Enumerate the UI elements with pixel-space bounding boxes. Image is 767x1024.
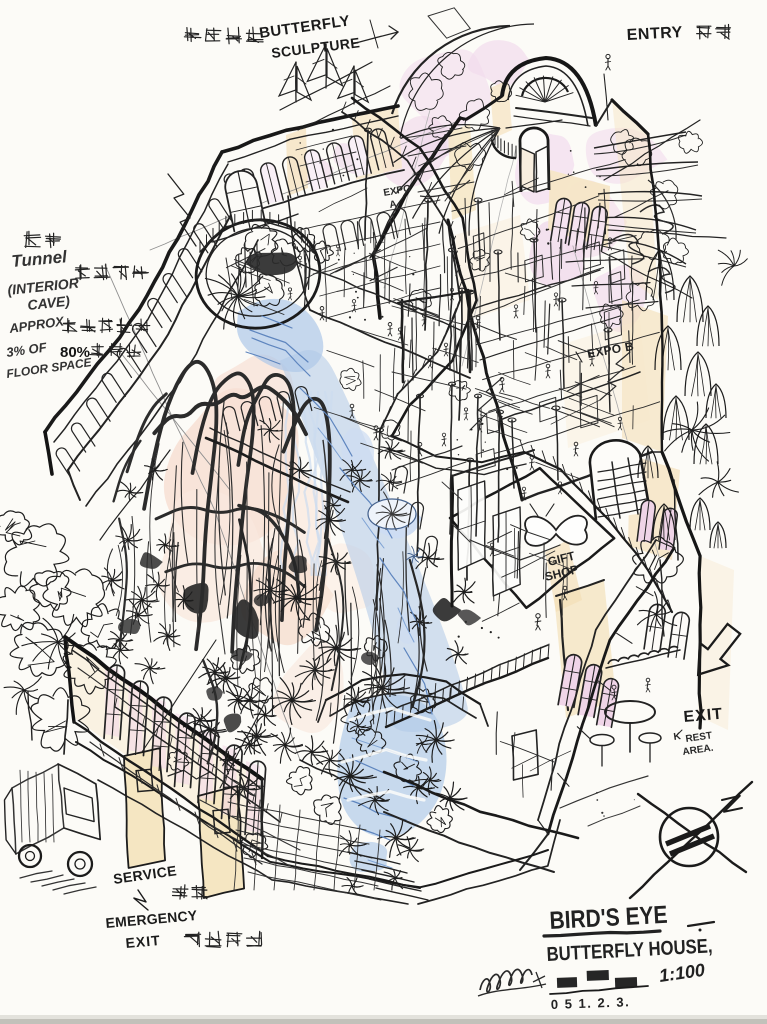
svg-text:ENTRY: ENTRY — [626, 24, 683, 44]
svg-text:EXIT: EXIT — [683, 706, 724, 726]
svg-text:0 5 1. 2. 3.: 0 5 1. 2. 3. — [551, 994, 631, 1012]
svg-text:EXIT: EXIT — [125, 932, 161, 951]
